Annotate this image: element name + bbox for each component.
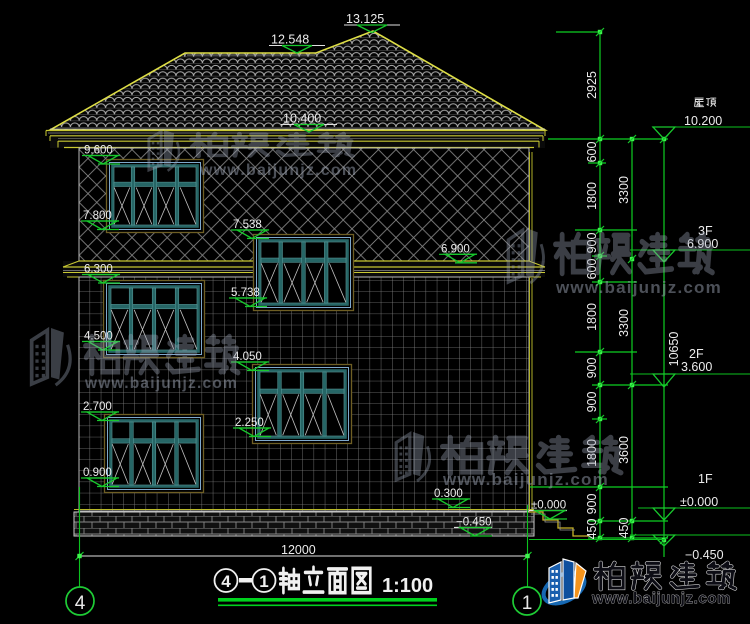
svg-text:10650: 10650 (667, 332, 681, 367)
svg-text:4: 4 (221, 572, 231, 591)
svg-text:www.baijunjz.com: www.baijunjz.com (442, 470, 609, 489)
svg-text:www.baijunjz.com: www.baijunjz.com (84, 375, 238, 392)
svg-text:900: 900 (585, 358, 599, 379)
svg-text:www.baijunjz.com: www.baijunjz.com (591, 590, 731, 607)
svg-text:3300: 3300 (617, 309, 631, 337)
svg-text:1:100: 1:100 (382, 575, 433, 597)
svg-text:2F: 2F (689, 347, 704, 361)
svg-text:900: 900 (585, 494, 599, 515)
svg-text:3.600: 3.600 (681, 360, 712, 374)
svg-text:13.125: 13.125 (346, 12, 384, 26)
svg-text:±0.000: ±0.000 (680, 495, 718, 509)
svg-text:−0.450: −0.450 (456, 517, 492, 529)
svg-text:9.600: 9.600 (84, 145, 113, 157)
svg-text:4.050: 4.050 (233, 351, 262, 363)
svg-text:5.738: 5.738 (231, 287, 260, 299)
svg-text:12000: 12000 (281, 543, 316, 557)
svg-text:www.baijunjz.com: www.baijunjz.com (199, 162, 357, 179)
svg-text:3300: 3300 (617, 176, 631, 204)
svg-text:4: 4 (75, 593, 86, 614)
svg-text:12.548: 12.548 (271, 33, 309, 47)
svg-text:www.baijunjz.com: www.baijunjz.com (555, 278, 722, 297)
svg-text:1F: 1F (698, 472, 713, 486)
svg-text:±0.000: ±0.000 (531, 500, 566, 512)
svg-text:10.400: 10.400 (283, 112, 321, 126)
svg-text:10.200: 10.200 (684, 114, 722, 128)
svg-text:2925: 2925 (585, 71, 599, 99)
svg-text:1800: 1800 (585, 303, 599, 331)
svg-text:450: 450 (617, 518, 631, 539)
svg-text:900: 900 (585, 392, 599, 413)
svg-text:2.700: 2.700 (83, 401, 112, 413)
svg-text:7.538: 7.538 (233, 219, 262, 231)
svg-text:1: 1 (259, 572, 268, 591)
svg-text:0.300: 0.300 (434, 488, 463, 500)
svg-text:7.800: 7.800 (83, 210, 112, 222)
svg-text:−0.450: −0.450 (685, 548, 724, 562)
svg-text:2.250: 2.250 (235, 417, 264, 429)
svg-text:6.900: 6.900 (441, 243, 470, 255)
svg-text:6.300: 6.300 (84, 264, 113, 276)
svg-text:1: 1 (522, 593, 533, 614)
svg-text:0.900: 0.900 (83, 467, 112, 479)
svg-text:450: 450 (585, 519, 599, 540)
svg-text:600: 600 (585, 142, 599, 163)
svg-text:1800: 1800 (585, 182, 599, 210)
